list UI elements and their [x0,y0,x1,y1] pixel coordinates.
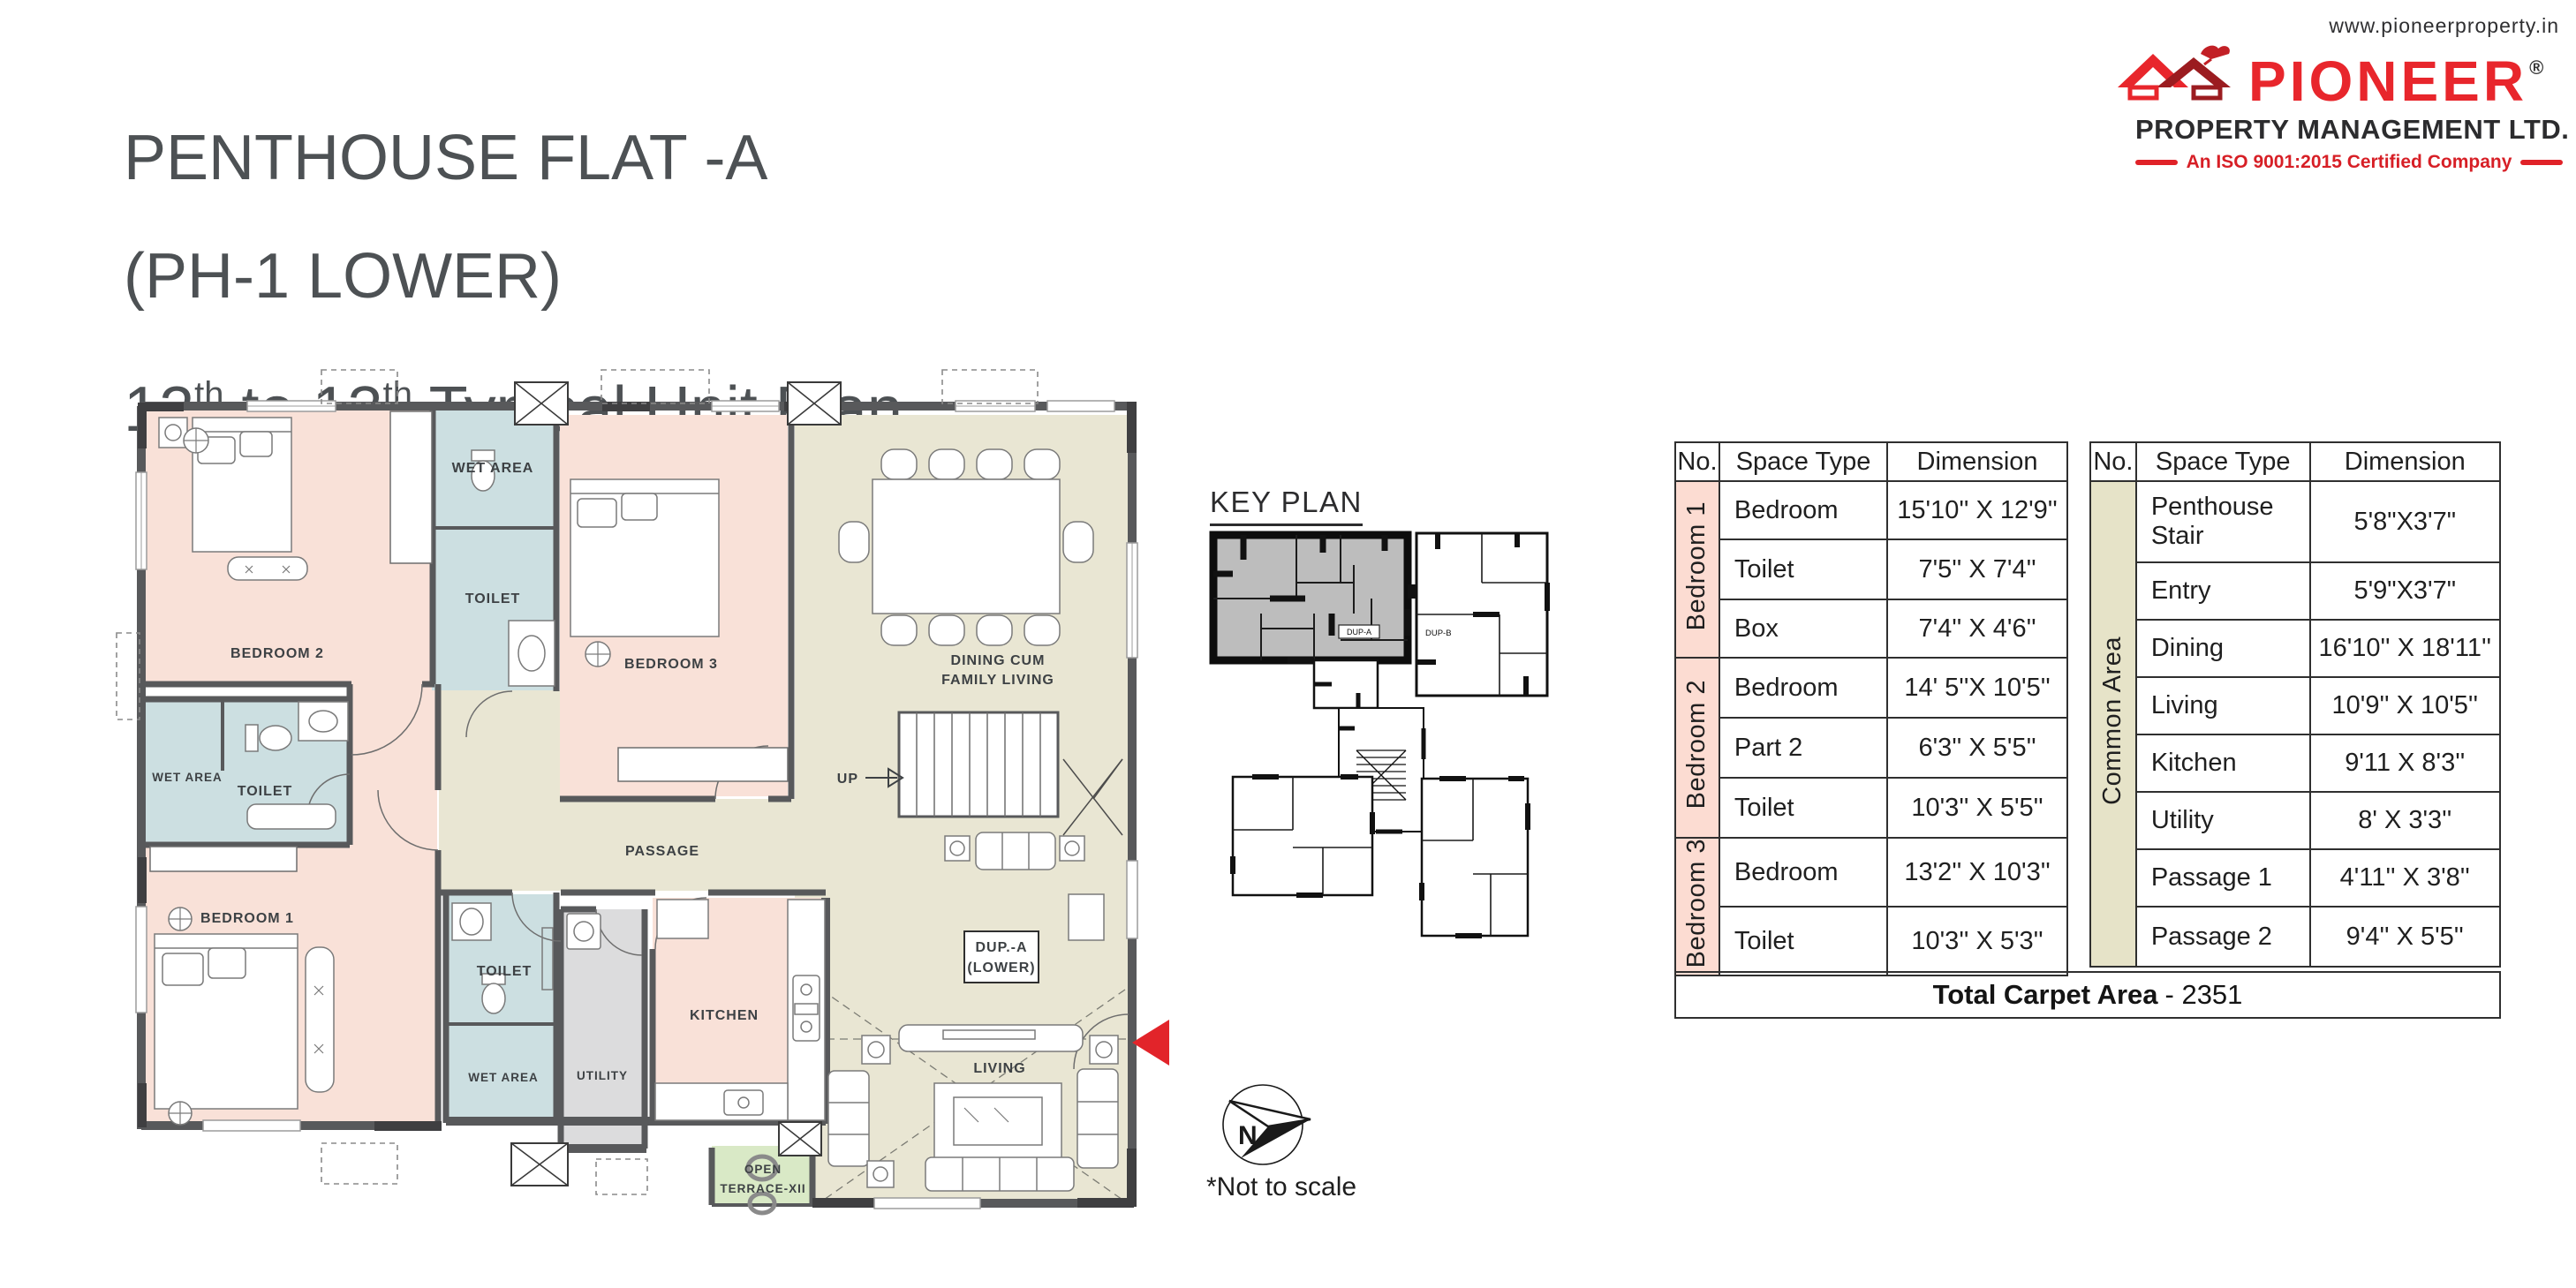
dimension-table-common-area: No. Space Type Dimension Common Area Pen… [2089,441,2501,968]
space-type-cell: Toilet [1719,778,1887,838]
title-line-2: (PH-1 LOWER) [124,217,903,335]
table1-header-space: Space Type [1719,442,1887,481]
unit-label-line1: DUP.-A [975,940,1027,955]
table-row: Utility 8' X 3'3'' [2090,792,2500,849]
table-row: Toilet 10'3'' X 5'5'' [1675,778,2067,838]
table1-header-dim: Dimension [1887,442,2067,481]
table1-header-no: No. [1675,442,1719,481]
keyplan-unit-a-label: DUP-A [1347,628,1371,636]
page: PENTHOUSE FLAT -A (PH-1 LOWER) 12th to 1… [0,0,2576,1288]
space-type-cell: Entry [2136,562,2310,620]
logo-website: www.pioneerproperty.in [2116,14,2572,38]
group-label: Common Area [2098,636,2127,805]
room-label-kitchen: KITCHEN [690,1008,759,1023]
group-cell-bedroom1: Bedroom 1 [1675,481,1719,658]
group-cell-bedroom2: Bedroom 2 [1675,658,1719,838]
registered-mark-icon: ® [2529,56,2547,79]
room-label-toilet-left: TOILET [238,784,293,799]
logo-brand-text: PIONEER® [2248,40,2547,109]
space-type-cell: Toilet [1719,907,1887,975]
table-row: Passage 2 9'4'' X 5'5'' [2090,907,2500,967]
dimension-cell: 13'2'' X 10'3'' [1887,838,2067,907]
space-type-cell: Passage 1 [2136,849,2310,907]
compass-north-letter: N [1238,1121,1258,1150]
room-label-bedroom3: BEDROOM 3 [624,657,718,672]
keyplan-unit-c [1233,777,1372,895]
table-row: Common Area Penthouse Stair 5'8"X3'7" [2090,481,2500,562]
table-row: Dining 16'10'' X 18'11'' [2090,620,2500,677]
table2-header-dim: Dimension [2310,442,2500,481]
space-type-cell: Utility [2136,792,2310,849]
room-label-bedroom1: BEDROOM 1 [200,911,294,926]
dimension-cell: 10'3'' X 5'5'' [1887,778,2067,838]
space-type-cell: Penthouse Stair [2136,481,2310,562]
space-type-cell: Living [2136,677,2310,734]
table-row: Entry 5'9"X3'7" [2090,562,2500,620]
table-row: Passage 1 4'11'' X 3'8'' [2090,849,2500,907]
space-type-cell: Bedroom [1719,838,1887,907]
room-label-bedroom2: BEDROOM 2 [230,646,324,661]
room-label-up: UP [837,772,858,787]
group-label: Bedroom 3 [1682,839,1711,968]
title-line-1: PENTHOUSE FLAT -A [124,99,903,217]
dimension-cell: 6'3'' X 5'5'' [1887,718,2067,778]
room-label-terrace-line2: TERRACE-XII [720,1182,805,1195]
dimension-cell: 14' 5''X 10'5'' [1887,658,2067,718]
table-row: Toilet 7'5'' X 7'4'' [1675,539,2067,599]
table-row: Toilet 10'3'' X 5'3'' [1675,907,2067,975]
group-label: Bedroom 2 [1682,680,1711,809]
pioneer-house-icon [2116,41,2248,109]
logo-iso-text: An ISO 9001:2015 Certified Company [2187,152,2512,173]
space-type-cell: Kitchen [2136,734,2310,792]
dimension-cell: 16'10'' X 18'11'' [2310,620,2500,677]
not-to-scale-note: *Not to scale [1206,1172,1356,1202]
total-label: Total Carpet Area [1933,979,2158,1011]
table-row: Bedroom 2 Bedroom 14' 5''X 10'5'' [1675,658,2067,718]
room-label-wet-area-top: WET AREA [452,461,534,476]
dimension-cell: 4'11'' X 3'8'' [2310,849,2500,907]
keyplan-unit-b: DUP-B [1416,533,1547,696]
group-label: Bedroom 1 [1682,501,1711,630]
room-label-living: LIVING [973,1061,1025,1076]
table-row: Living 10'9'' X 10'5'' [2090,677,2500,734]
dimension-cell: 10'3'' X 5'3'' [1887,907,2067,975]
total-value: - 2351 [2165,979,2243,1011]
keyplan-lobby [1314,660,1378,708]
red-rule-left [2135,160,2178,165]
room-label-utility: UTILITY [577,1069,628,1082]
table-row: Bedroom 1 Bedroom 15'10'' X 12'9'' [1675,481,2067,539]
total-carpet-area-bar: Total Carpet Area - 2351 [1674,971,2501,1019]
room-label-terrace-line1: OPEN [744,1163,782,1176]
room-label-dining-line1: DINING CUM [951,653,1046,668]
room-label-toilet-center: TOILET [477,964,533,979]
keyplan-unit-a-highlighted: DUP-A [1213,535,1408,660]
key-plan: DUP-A DUP-B [1208,530,1597,1028]
space-type-cell: Toilet [1719,539,1887,599]
table2-header-no: No. [2090,442,2136,481]
group-cell-bedroom3: Bedroom 3 [1675,838,1719,975]
room-label-dining-line2: FAMILY LIVING [941,673,1054,688]
dimension-cell: 8' X 3'3'' [2310,792,2500,849]
keyplan-title: KEY PLAN [1210,486,1363,526]
logo-brand-word: PIONEER [2248,49,2527,113]
space-type-cell: Passage 2 [2136,907,2310,967]
dimension-table-bedrooms: No. Space Type Dimension Bedroom 1 Bedro… [1674,441,2068,976]
logo-subtitle: PROPERTY MANAGEMENT LTD. [2116,114,2572,146]
floor-plan: DUP.-A (LOWER) BEDROOM 2 WET AREA TOILET… [115,366,1175,1227]
table-row: Bedroom 3 Bedroom 13'2'' X 10'3'' [1675,838,2067,907]
group-cell-common-area: Common Area [2090,481,2136,967]
dimension-cell: 10'9'' X 10'5'' [2310,677,2500,734]
table-row: Part 2 6'3'' X 5'5'' [1675,718,2067,778]
keyplan-unit-b-label: DUP-B [1425,629,1452,638]
dimension-cell: 15'10'' X 12'9'' [1887,481,2067,539]
room-label-wet-area-left: WET AREA [152,771,223,784]
dimension-cell: 9'11 X 8'3'' [2310,734,2500,792]
dimension-cell: 5'9"X3'7" [2310,562,2500,620]
room-label-wet-area-center: WET AREA [468,1071,539,1084]
dimension-cell: 7'5'' X 7'4'' [1887,539,2067,599]
red-entry-arrow-icon [1132,1020,1169,1066]
dimension-cell: 9'4'' X 5'5'' [2310,907,2500,967]
north-compass-icon: N [1219,1081,1325,1182]
room-label-passage: PASSAGE [625,844,699,859]
table2-header-space: Space Type [2136,442,2310,481]
unit-label-box: DUP.-A (LOWER) [964,931,1039,983]
space-type-cell: Box [1719,599,1887,658]
red-rule-right [2520,160,2563,165]
space-type-cell: Bedroom [1719,481,1887,539]
space-type-cell: Dining [2136,620,2310,677]
keyplan-unit-d [1422,779,1528,936]
room-label-toilet-top: TOILET [465,591,521,606]
space-type-cell: Part 2 [1719,718,1887,778]
company-logo: www.pioneerproperty.in PIONEER® PROPERTY… [2116,14,2572,173]
dimension-cell: 5'8"X3'7" [2310,481,2500,562]
dimension-cell: 7'4'' X 4'6'' [1887,599,2067,658]
space-type-cell: Bedroom [1719,658,1887,718]
unit-label-line2: (LOWER) [967,960,1035,975]
table-row: Kitchen 9'11 X 8'3'' [2090,734,2500,792]
table-row: Box 7'4'' X 4'6'' [1675,599,2067,658]
